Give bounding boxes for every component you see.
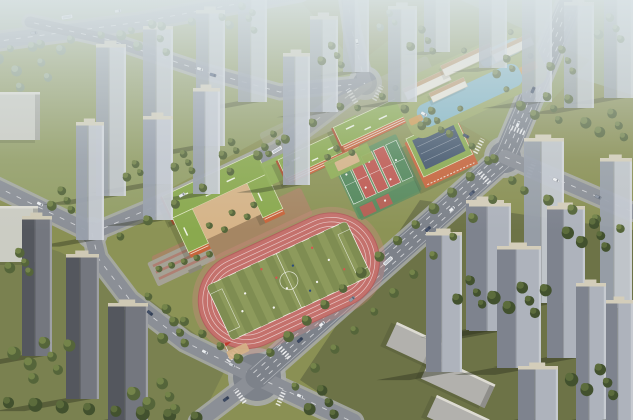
aerial-render-viewport <box>0 0 633 420</box>
tower-edge-highlight <box>218 88 220 194</box>
tower-edge-highlight <box>308 53 310 185</box>
tree-highlight <box>98 31 103 36</box>
tree-highlight <box>613 25 617 29</box>
tree-highlight <box>356 267 363 274</box>
tree-highlight <box>8 347 16 355</box>
tree-highlight <box>530 110 536 116</box>
tree-highlight <box>377 23 382 28</box>
tree-highlight <box>320 300 326 306</box>
tree-highlight <box>281 134 287 140</box>
tower-lit-face <box>535 0 552 102</box>
tree-highlight <box>238 2 243 7</box>
tower-lit-face <box>535 366 558 420</box>
tree-highlight <box>595 364 602 371</box>
tree-highlight <box>447 187 453 193</box>
tower-corner-line <box>88 122 89 240</box>
tree-highlight <box>270 130 274 134</box>
tree-highlight <box>143 215 149 221</box>
tree-highlight <box>581 383 589 391</box>
tower-roof-box <box>318 13 329 18</box>
tree-highlight <box>67 35 72 40</box>
tree-highlight <box>171 199 177 205</box>
tree-highlight <box>15 248 21 254</box>
tower-corner-line <box>400 6 401 102</box>
tower-lit-face <box>435 0 450 52</box>
tower-corner-line <box>204 88 205 194</box>
tree-highlight <box>28 42 34 48</box>
tree-highlight <box>449 233 454 238</box>
tree-highlight <box>185 159 189 163</box>
tree-highlight <box>37 58 42 63</box>
tower-shaded-face <box>283 53 294 185</box>
tree-highlight <box>162 304 168 310</box>
tree-highlight <box>318 56 323 61</box>
tree-highlight <box>530 308 536 314</box>
tower-edge-highlight <box>448 0 450 52</box>
tower-roof-box <box>151 113 163 118</box>
tree-highlight <box>199 183 204 188</box>
tree-highlight <box>217 342 222 347</box>
tree-highlight <box>389 288 395 294</box>
tower-roof-box <box>291 50 302 55</box>
tree-highlight <box>546 62 551 67</box>
tower-roof-box <box>84 119 95 124</box>
tower-corner-line <box>515 246 516 368</box>
tower-lit-face <box>109 44 126 196</box>
tower-lit-face <box>613 158 632 308</box>
tree-highlight <box>158 333 165 340</box>
tree-highlight <box>606 13 611 18</box>
tree-highlight <box>492 69 497 74</box>
tower-roof-box <box>609 155 622 160</box>
tree-highlight <box>490 154 495 159</box>
tree-highlight <box>58 186 63 191</box>
tree-highlight <box>608 390 614 396</box>
tower-roof-box <box>509 243 527 248</box>
low-building-roof-edge <box>0 206 38 209</box>
tree-highlight <box>123 172 128 177</box>
tree-highlight <box>7 45 11 49</box>
tree-highlight <box>309 118 314 123</box>
tower-corner-line <box>616 0 617 98</box>
low-white-a <box>0 92 40 143</box>
tower-lit-face <box>354 0 369 72</box>
tower-edge-highlight <box>102 122 104 240</box>
tree-highlight <box>525 296 531 302</box>
tree-highlight <box>137 169 141 173</box>
tree-highlight <box>143 397 151 405</box>
tree-highlight <box>351 326 356 331</box>
tree-highlight <box>393 236 399 242</box>
tower-edge-highlight <box>592 2 594 108</box>
tree-highlight <box>466 172 472 178</box>
tree-highlight <box>24 357 32 365</box>
tree-highlight <box>37 40 42 45</box>
tree-highlight <box>219 150 224 155</box>
tree-highlight <box>127 387 135 395</box>
tree-highlight <box>555 116 560 121</box>
tree-highlight <box>148 20 153 25</box>
tree-highlight <box>56 45 62 51</box>
tree-highlight <box>133 41 139 47</box>
tower-shaded-face <box>547 206 563 358</box>
tower-shaded-face <box>343 0 354 72</box>
tree-highlight <box>452 293 459 300</box>
tower-lit-face <box>400 6 417 102</box>
tree-highlight <box>565 57 569 61</box>
tree-highlight <box>616 224 621 229</box>
tree-highlight <box>478 300 483 305</box>
scene-svg <box>0 0 633 420</box>
tower-lit-face <box>294 53 310 185</box>
tree-highlight <box>603 378 609 384</box>
tree-highlight <box>473 288 478 293</box>
tree-highlight <box>117 232 122 237</box>
tree-highlight <box>83 403 90 410</box>
tower-corner-line <box>441 232 442 372</box>
tree-highlight <box>165 392 171 398</box>
tree-highlight <box>225 20 230 25</box>
tower-lit-face <box>515 246 541 368</box>
tree-highlight <box>180 150 185 155</box>
tower-edge-highlight <box>539 246 541 368</box>
tree-highlight <box>180 317 186 323</box>
tower-shaded-face <box>606 300 617 420</box>
tree-highlight <box>111 405 118 412</box>
tree-highlight <box>328 42 333 47</box>
tree-highlight <box>601 242 607 248</box>
tree-highlight <box>543 195 550 202</box>
tower-roof-box <box>75 251 88 256</box>
tree-highlight <box>617 35 622 40</box>
tree-highlight <box>68 206 73 211</box>
tree-highlight <box>488 195 494 201</box>
tree-highlight <box>589 218 596 225</box>
tree-highlight <box>620 133 625 138</box>
tower-shaded-face <box>76 122 88 240</box>
tower-roof-box <box>535 135 551 140</box>
tree-highlight <box>170 404 176 410</box>
tree-highlight <box>334 52 338 56</box>
tree-highlight <box>339 284 344 289</box>
tree-highlight <box>418 121 423 126</box>
tree-highlight <box>434 117 438 121</box>
tree-highlight <box>325 398 330 403</box>
tree-highlight <box>11 65 18 72</box>
tower-roof-box <box>436 229 450 234</box>
tower-edge-highlight <box>630 158 632 308</box>
tree-highlight <box>337 102 342 107</box>
tree-highlight <box>292 382 297 387</box>
tree-highlight <box>44 73 49 78</box>
tree-highlight <box>261 143 266 148</box>
tower-roof-box <box>119 300 135 305</box>
tree-highlight <box>253 150 259 156</box>
tree-highlight <box>169 317 175 323</box>
tree-highlight <box>56 400 64 408</box>
tree-highlight <box>157 378 164 385</box>
tree-highlight <box>338 61 342 65</box>
tree-highlight <box>181 339 186 344</box>
tree-highlight <box>21 258 26 263</box>
tree-highlight <box>607 108 613 114</box>
tower-shaded-face <box>576 283 589 420</box>
tree-highlight <box>428 107 433 112</box>
tree-highlight <box>595 126 602 133</box>
tree-highlight <box>429 203 436 210</box>
tower-corner-line <box>589 283 590 420</box>
tree-highlight <box>558 45 563 50</box>
tree-highlight <box>5 262 12 269</box>
tree-highlight <box>425 37 429 41</box>
tower-lit-face <box>577 2 594 108</box>
tower-corner-line <box>156 116 157 220</box>
tree-highlight <box>227 167 232 172</box>
tree-highlight <box>517 282 524 289</box>
tree-highlight <box>64 197 68 201</box>
tower-lit-face <box>88 122 104 240</box>
tower-lit-face <box>80 254 99 399</box>
tree-highlight <box>25 267 30 272</box>
tower-corner-line <box>435 0 436 52</box>
tower-shaded-face <box>193 88 204 194</box>
tree-highlight <box>569 67 573 71</box>
tree-highlight <box>158 22 163 27</box>
tree-highlight <box>565 373 573 381</box>
tree-highlight <box>386 10 390 14</box>
tree-highlight <box>53 364 59 370</box>
tower-edge-highlight <box>50 216 52 356</box>
tower-edge-highlight <box>604 283 606 420</box>
tower-roof-box <box>204 7 216 12</box>
tree-highlight <box>429 251 434 256</box>
tree-highlight <box>198 329 203 334</box>
tree-highlight <box>283 331 290 338</box>
tree-highlight <box>311 363 317 369</box>
tree-highlight <box>484 156 489 161</box>
tree-highlight <box>615 121 620 126</box>
tree-highlight <box>47 352 53 358</box>
tree-highlight <box>302 315 308 321</box>
tree-highlight <box>191 411 198 418</box>
tree-highlight <box>29 398 38 407</box>
tree-highlight <box>576 236 583 243</box>
tree-highlight <box>597 231 602 236</box>
tree-highlight <box>568 204 574 210</box>
tree-highlight <box>16 83 21 88</box>
tower-lit-face <box>35 216 52 356</box>
tower-edge-highlight <box>223 10 225 146</box>
tower-shaded-face <box>564 2 577 108</box>
tree-highlight <box>375 251 381 257</box>
tower-corner-line <box>354 0 355 72</box>
tower-corner-line <box>35 216 36 356</box>
tree-highlight <box>465 275 471 281</box>
tower-lit-face <box>589 283 606 420</box>
tree-highlight <box>246 15 250 19</box>
tree-highlight <box>520 186 525 191</box>
tree-highlight <box>564 94 570 100</box>
tower-corner-line <box>535 366 536 420</box>
tree-highlight <box>163 48 168 53</box>
tree-highlight <box>503 301 511 309</box>
tower-roof-box <box>584 280 596 285</box>
tree-highlight <box>317 385 324 392</box>
tree-highlight <box>371 308 376 313</box>
tower-roof-box <box>104 41 116 46</box>
tower-lit-face <box>617 300 633 420</box>
tower-roof-box <box>201 85 212 90</box>
tree-highlight <box>509 65 513 69</box>
tower-edge-highlight <box>97 254 99 399</box>
tree-highlight <box>266 348 271 353</box>
tree-highlight <box>409 269 415 275</box>
low-building-body <box>0 92 40 140</box>
tree-highlight <box>488 291 496 299</box>
tower-shaded-face <box>479 0 491 68</box>
tower-edge-highlight <box>336 16 338 112</box>
tree-highlight <box>233 147 237 151</box>
tower-corner-line <box>109 44 110 196</box>
tree-highlight <box>392 19 395 22</box>
tree-highlight <box>330 409 336 415</box>
tree-highlight <box>128 27 132 31</box>
tower-edge-highlight <box>367 0 369 72</box>
tree-highlight <box>401 104 406 109</box>
tower-shaded-face <box>66 254 80 399</box>
tower-corner-line <box>535 0 536 102</box>
tree-highlight <box>171 163 176 168</box>
tower-corner-line <box>577 2 578 108</box>
tower-roof-box <box>572 0 584 3</box>
tree-highlight <box>28 373 35 380</box>
tree-highlight <box>176 328 181 333</box>
tree-highlight <box>550 105 554 109</box>
tower-corner-line <box>487 203 488 331</box>
tree-highlight <box>516 101 522 107</box>
tree-highlight <box>64 339 71 346</box>
tree-highlight <box>508 176 513 181</box>
tree-highlight <box>379 93 383 97</box>
tower-roof-box <box>30 213 42 218</box>
tower-corner-line <box>80 254 81 399</box>
tower-corner-line <box>125 303 126 420</box>
tree-highlight <box>3 397 10 404</box>
tower-edge-highlight <box>415 6 417 102</box>
tower-shaded-face <box>518 366 535 420</box>
tower-corner-line <box>491 0 492 68</box>
tree-highlight <box>275 139 278 142</box>
tree-highlight <box>543 92 548 97</box>
tree-highlight <box>580 117 587 124</box>
tower-shaded-face <box>108 303 125 420</box>
tower-roof-box <box>529 363 545 368</box>
tree-highlight <box>540 284 547 291</box>
tower-lit-face <box>156 116 173 220</box>
tree-highlight <box>132 160 137 165</box>
tree-highlight <box>469 142 473 146</box>
tree-highlight <box>468 213 474 219</box>
tree-highlight <box>189 167 193 171</box>
tree-highlight <box>406 42 411 47</box>
tower-roof-box <box>614 297 625 302</box>
tower-corner-line <box>294 53 295 185</box>
tower-edge-highlight <box>556 366 558 420</box>
tree-highlight <box>304 403 311 410</box>
tower-roof-box <box>396 3 408 8</box>
tower-edge-highlight <box>550 0 552 102</box>
tree-highlight <box>423 117 428 122</box>
tree-highlight <box>219 13 224 18</box>
tower-shaded-face <box>143 116 156 220</box>
tree-highlight <box>251 26 255 30</box>
tower-shaded-face <box>424 0 435 52</box>
tree-highlight <box>438 126 442 130</box>
tree-highlight <box>234 354 240 360</box>
tower-corner-line <box>613 158 614 308</box>
tree-highlight <box>562 226 570 234</box>
tree-highlight <box>188 17 193 22</box>
tree-highlight <box>47 201 53 207</box>
tower-lit-face <box>204 88 220 194</box>
tree-highlight <box>116 30 122 36</box>
tree-highlight <box>331 344 337 350</box>
tree-highlight <box>228 138 233 143</box>
tree-highlight <box>412 220 417 225</box>
low-building-roof-edge <box>0 92 40 95</box>
tree-highlight <box>39 337 46 344</box>
tree-highlight <box>503 55 508 60</box>
tree-highlight <box>429 47 433 51</box>
tower-edge-highlight <box>265 0 267 102</box>
low-building-side <box>35 92 40 140</box>
tower-corner-line <box>617 300 618 420</box>
tree-highlight <box>145 292 150 297</box>
tree-highlight <box>446 130 451 135</box>
tree-highlight <box>418 25 423 30</box>
tower-lit-face <box>616 0 633 98</box>
tower-shaded-face <box>22 216 35 356</box>
tree-highlight <box>157 35 161 39</box>
tree-highlight <box>594 29 600 35</box>
tree-highlight <box>136 406 145 415</box>
tree-highlight <box>249 9 253 13</box>
